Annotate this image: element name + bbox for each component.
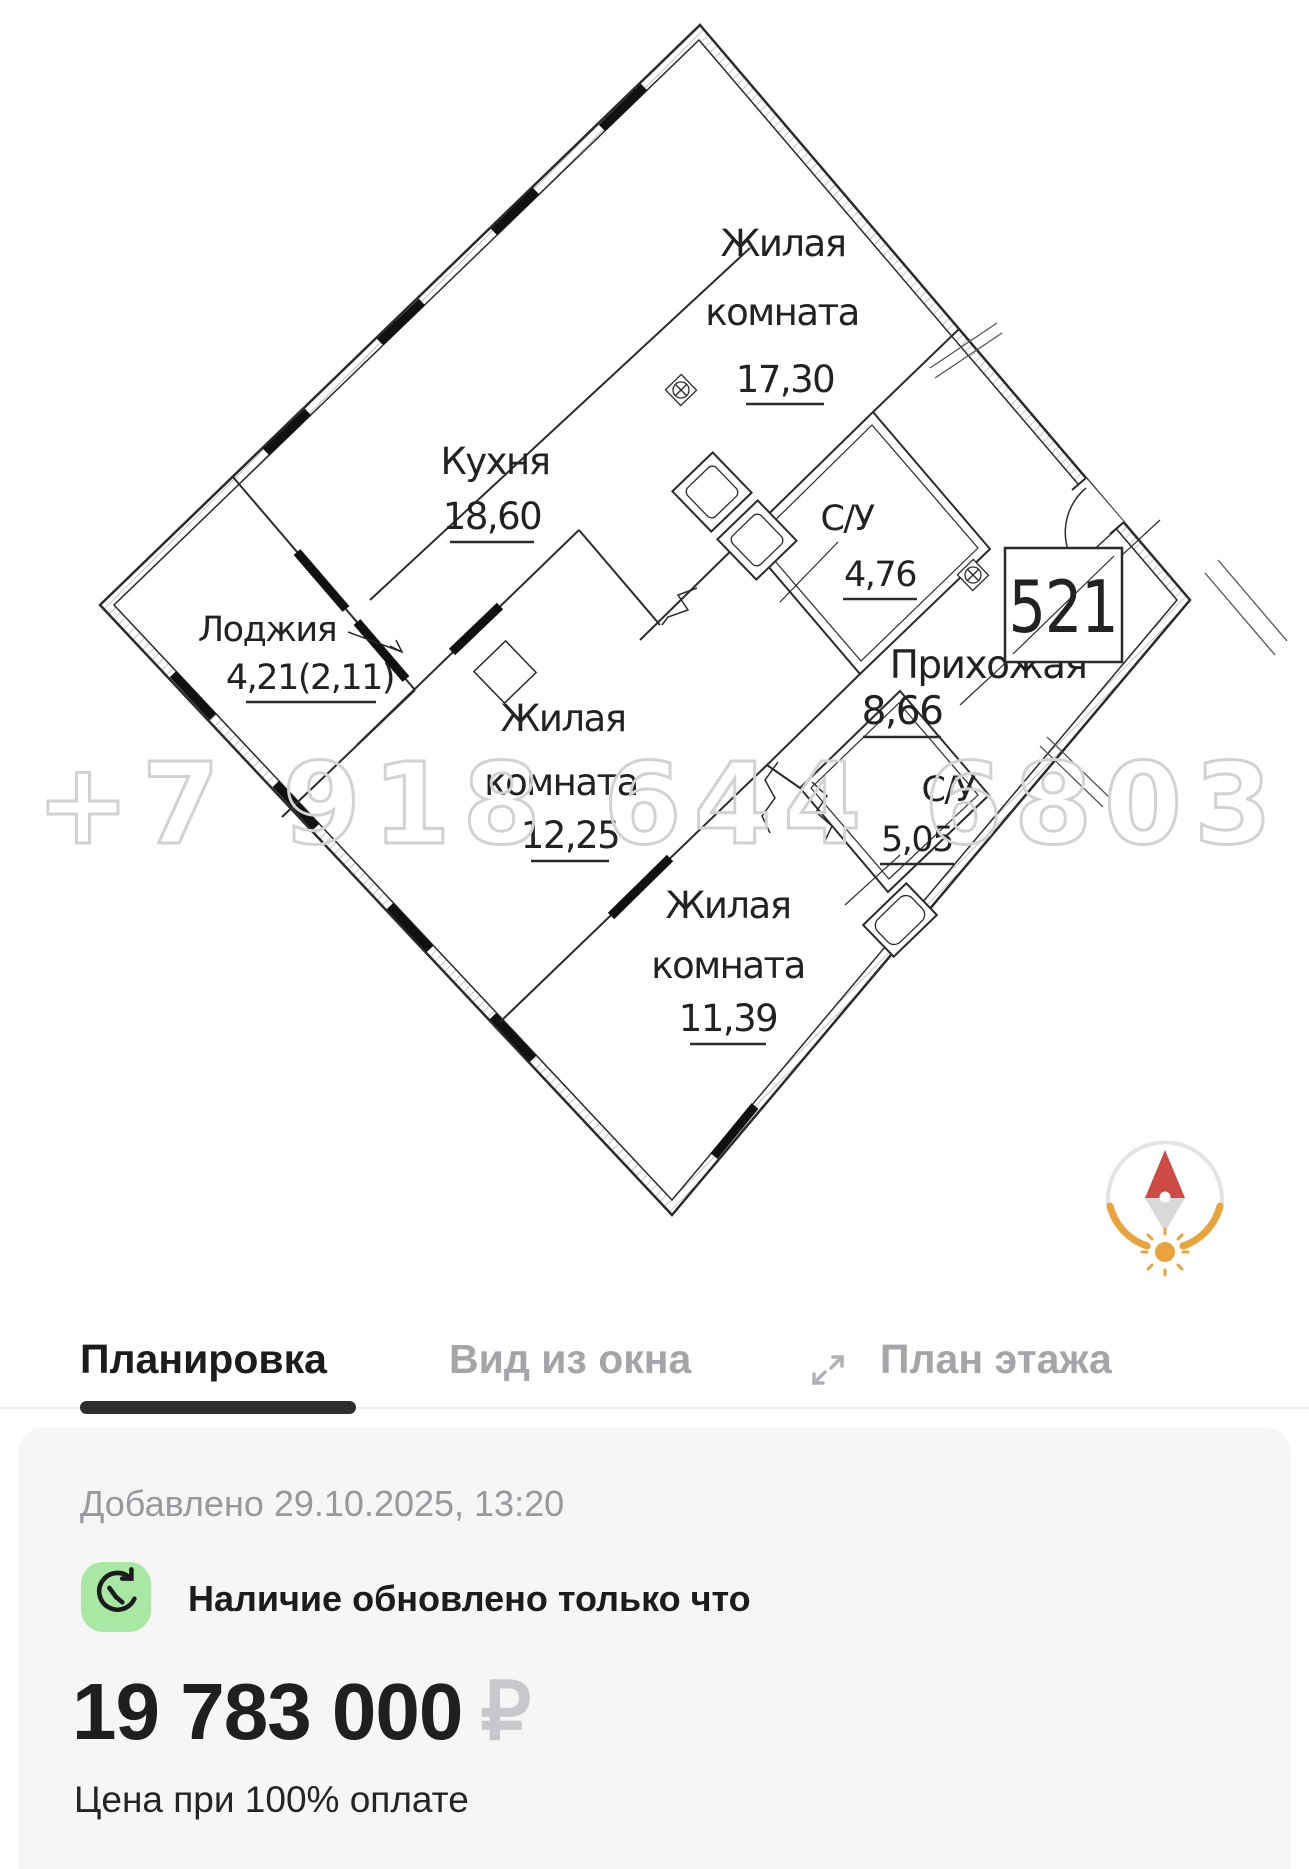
room-name: Жилая xyxy=(666,884,791,927)
room-name: Лоджия xyxy=(198,610,336,650)
room-labels: Жилая комната 17,30 Кухня 18,60 Лоджия 4… xyxy=(198,222,1087,1044)
room-label-bath-1: С/У 4,76 xyxy=(820,499,917,599)
room-area: 8,66 xyxy=(862,689,943,734)
tab-window-view[interactable]: Вид из окна xyxy=(449,1336,691,1383)
availability-updated-icon xyxy=(81,1562,151,1632)
room-name: Жилая xyxy=(721,222,846,265)
room-area: 4,76 xyxy=(844,555,916,595)
room-name: комната xyxy=(651,944,805,987)
floor-plan-image: Жилая комната 17,30 Кухня 18,60 Лоджия 4… xyxy=(0,0,1309,1300)
room-area: 11,39 xyxy=(679,997,777,1040)
added-date: Добавлено 29.10.2025, 13:20 xyxy=(80,1483,564,1525)
room-label-living-1: Жилая комната 17,30 xyxy=(705,222,859,404)
room-name: комната xyxy=(705,291,859,334)
price-row: 19 783 000₽ xyxy=(72,1665,530,1758)
price-note: Цена при 100% оплате xyxy=(74,1779,469,1821)
room-name: Жилая xyxy=(501,697,626,740)
expand-icon[interactable] xyxy=(806,1348,850,1392)
availability-status: Наличие обновлено только что xyxy=(188,1578,751,1620)
unit-number-box: 521 xyxy=(1005,548,1122,662)
tab-floor-plan[interactable]: План этажа xyxy=(880,1336,1112,1383)
room-label-kitchen: Кухня 18,60 xyxy=(440,440,549,542)
currency-symbol: ₽ xyxy=(480,1667,530,1756)
room-area: 4,21(2,11) xyxy=(226,658,394,698)
tab-layout[interactable]: Планировка xyxy=(80,1336,327,1383)
clock-refresh-icon xyxy=(81,1562,151,1632)
room-name: Кухня xyxy=(440,440,549,483)
room-area: 17,30 xyxy=(736,358,834,401)
room-name: С/У xyxy=(820,499,874,539)
room-label-loggia: Лоджия 4,21(2,11) xyxy=(198,610,394,702)
room-label-living-3: Жилая комната 11,39 xyxy=(651,884,805,1044)
listing-info-card: Добавлено 29.10.2025, 13:20 Наличие обно… xyxy=(18,1427,1291,1869)
room-area: 18,60 xyxy=(443,495,541,538)
compass-icon xyxy=(1108,1142,1222,1275)
listing-screen: Жилая комната 17,30 Кухня 18,60 Лоджия 4… xyxy=(0,0,1309,1869)
watermark-phone: +7 918 644 6803 xyxy=(36,740,1284,870)
active-tab-indicator xyxy=(80,1401,356,1414)
unit-number: 521 xyxy=(1009,565,1118,649)
price-value: 19 783 000 xyxy=(72,1667,462,1756)
